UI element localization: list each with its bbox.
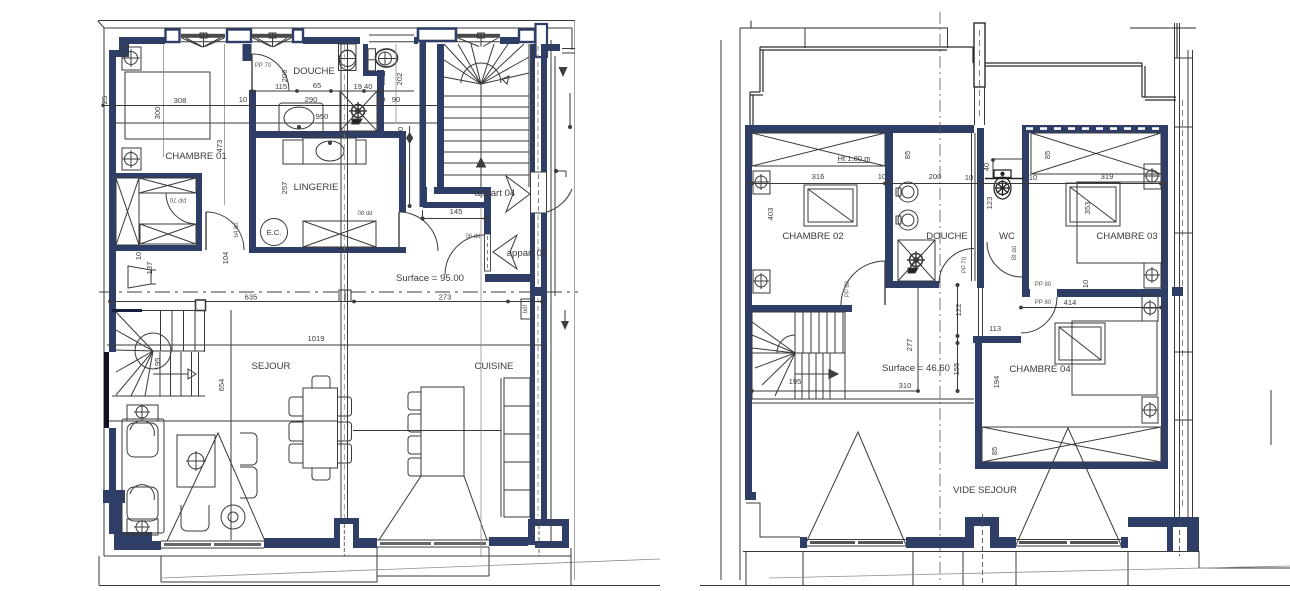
svg-text:85: 85	[990, 447, 999, 455]
svg-text:Ht 1.80 m: Ht 1.80 m	[838, 154, 871, 163]
svg-text:195: 195	[789, 377, 802, 386]
svg-text:VIDE SEJOUR: VIDE SEJOUR	[953, 485, 1017, 496]
svg-text:CHAMBRE 04: CHAMBRE 04	[1009, 364, 1071, 375]
svg-text:319: 319	[1101, 172, 1114, 181]
svg-text:10: 10	[965, 173, 973, 182]
svg-text:310: 310	[899, 381, 912, 390]
svg-text:195: 195	[153, 358, 162, 371]
svg-text:104: 104	[221, 252, 230, 265]
svg-text:PP 80: PP 80	[845, 280, 851, 297]
svg-text:273: 273	[439, 293, 452, 302]
svg-text:168: 168	[398, 165, 407, 178]
svg-text:113: 113	[989, 324, 1001, 333]
svg-text:06 dd: 06 dd	[465, 234, 480, 240]
svg-text:10: 10	[239, 95, 247, 104]
svg-text:40: 40	[982, 163, 991, 171]
svg-text:145: 145	[450, 207, 463, 216]
svg-text:10: 10	[396, 127, 405, 135]
svg-text:654: 654	[217, 379, 226, 392]
svg-text:206: 206	[280, 70, 289, 83]
svg-text:65: 65	[313, 81, 321, 90]
svg-text:473: 473	[215, 140, 224, 153]
svg-text:Surface = 95.00: Surface = 95.00	[396, 273, 464, 284]
svg-text:bdf: bdf	[523, 304, 529, 313]
svg-text:E.C.: E.C.	[267, 228, 282, 237]
svg-text:PP 70: PP 70	[169, 196, 186, 202]
svg-text:10: 10	[377, 95, 385, 104]
svg-text:257: 257	[280, 182, 289, 195]
svg-text:CHAMBRE 02: CHAMBRE 02	[782, 231, 843, 242]
svg-text:CHAMBRE 03: CHAMBRE 03	[1096, 231, 1157, 242]
svg-text:25: 25	[100, 96, 109, 104]
svg-text:PP 80: PP 80	[1035, 300, 1052, 306]
svg-text:LINGERIE: LINGERIE	[294, 182, 339, 193]
svg-text:Bt dd: Bt dd	[1012, 246, 1018, 260]
svg-text:85: 85	[1043, 151, 1052, 159]
svg-text:DOUCHE: DOUCHE	[293, 66, 335, 77]
svg-text:115: 115	[275, 82, 287, 91]
svg-text:403: 403	[766, 208, 775, 221]
svg-text:308: 308	[174, 96, 187, 105]
svg-text:155: 155	[952, 363, 961, 376]
svg-text:353: 353	[1083, 202, 1092, 215]
svg-text:PP 80: PP 80	[1035, 282, 1052, 288]
svg-text:414: 414	[1064, 298, 1077, 307]
svg-text:200: 200	[929, 172, 942, 181]
svg-text:10: 10	[1029, 173, 1037, 182]
svg-text:277: 277	[905, 339, 914, 352]
svg-text:PP 70: PP 70	[255, 63, 272, 69]
svg-text:CUISINE: CUISINE	[475, 361, 514, 372]
svg-text:DOUCHE: DOUCHE	[926, 231, 968, 242]
svg-text:10: 10	[134, 252, 143, 260]
svg-text:SEJOUR: SEJOUR	[252, 361, 291, 372]
svg-text:290: 290	[305, 95, 318, 104]
svg-text:123: 123	[985, 197, 994, 210]
svg-text:122: 122	[954, 304, 963, 317]
svg-text:WC: WC	[999, 231, 1015, 242]
svg-text:appart 04: appart 04	[475, 188, 516, 199]
svg-text:194: 194	[992, 376, 1001, 389]
svg-text:10: 10	[878, 172, 886, 181]
svg-text:b4 80: b4 80	[234, 222, 240, 238]
svg-text:85: 85	[903, 151, 912, 159]
svg-text:appart 05: appart 05	[507, 248, 548, 259]
svg-text:PP 70: PP 70	[962, 256, 968, 273]
svg-text:950: 950	[316, 112, 329, 121]
svg-text:10: 10	[1081, 280, 1090, 288]
svg-text:137: 137	[145, 262, 154, 275]
svg-text:08 dd: 08 dd	[357, 211, 372, 217]
svg-text:300: 300	[153, 107, 162, 120]
svg-text:1019: 1019	[308, 334, 325, 343]
svg-text:316: 316	[812, 172, 825, 181]
svg-text:Surface = 46.60: Surface = 46.60	[882, 363, 950, 374]
svg-text:635: 635	[245, 293, 258, 302]
